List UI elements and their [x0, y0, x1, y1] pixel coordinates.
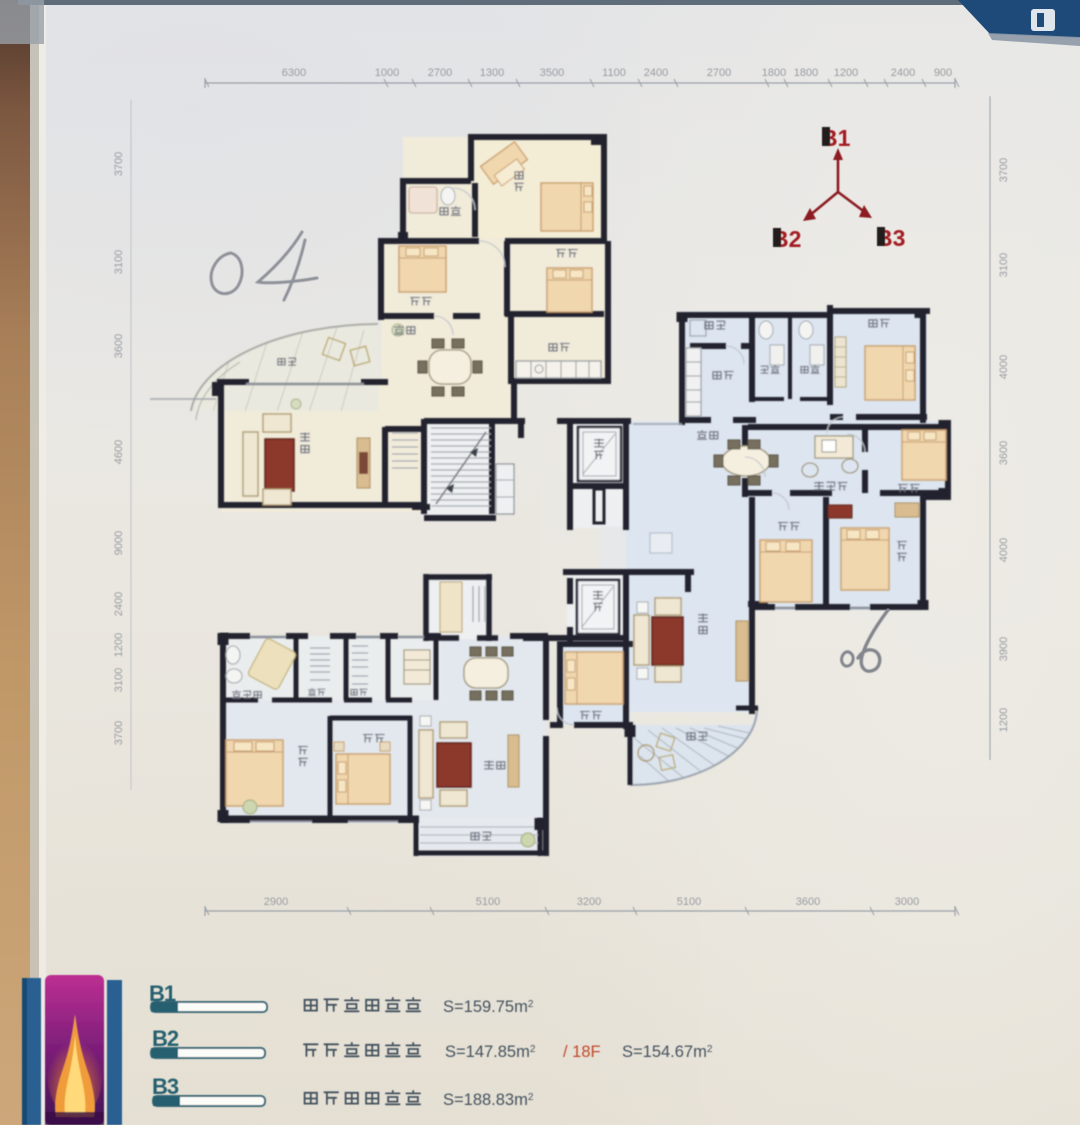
svg-text:3000: 3000 — [895, 896, 919, 908]
svg-text:2900: 2900 — [264, 896, 288, 908]
svg-text:3600: 3600 — [998, 441, 1010, 465]
svg-text:3100: 3100 — [998, 253, 1010, 277]
svg-text:5100: 5100 — [677, 896, 701, 908]
svg-text:3700: 3700 — [113, 152, 125, 176]
svg-text:9000: 9000 — [113, 531, 125, 555]
svg-text:6300: 6300 — [282, 67, 306, 79]
svg-text:2700: 2700 — [707, 67, 731, 79]
svg-text:3600: 3600 — [113, 334, 125, 358]
svg-text:S=188.83m2: S=188.83m2 — [443, 1091, 534, 1109]
svg-text:S=147.85m2: S=147.85m2 — [445, 1043, 536, 1061]
svg-text:3200: 3200 — [577, 896, 601, 908]
svg-text:2400: 2400 — [891, 67, 915, 79]
svg-text:1000: 1000 — [375, 67, 399, 79]
svg-text:4000: 4000 — [998, 538, 1010, 562]
svg-text:/ 18F: / 18F — [563, 1043, 601, 1061]
svg-text:2400: 2400 — [113, 592, 125, 616]
svg-text:2400: 2400 — [644, 67, 668, 79]
svg-text:3100: 3100 — [113, 668, 125, 692]
svg-text:S=154.67m2: S=154.67m2 — [622, 1043, 713, 1061]
svg-text:5100: 5100 — [476, 896, 500, 908]
svg-text:1200: 1200 — [834, 67, 858, 79]
svg-text:3900: 3900 — [998, 637, 1010, 661]
svg-text:900: 900 — [934, 67, 952, 79]
svg-text:1800: 1800 — [762, 67, 786, 79]
svg-text:2700: 2700 — [428, 67, 452, 79]
svg-text:3600: 3600 — [796, 896, 820, 908]
svg-text:3700: 3700 — [113, 721, 125, 745]
svg-text:1100: 1100 — [602, 67, 626, 79]
svg-text:3100: 3100 — [113, 250, 125, 274]
svg-text:1200: 1200 — [998, 708, 1010, 732]
svg-text:4000: 4000 — [998, 355, 1010, 379]
svg-text:S=159.75m2: S=159.75m2 — [443, 998, 534, 1016]
svg-text:1300: 1300 — [480, 67, 504, 79]
svg-text:3500: 3500 — [540, 67, 564, 79]
svg-text:1800: 1800 — [794, 67, 818, 79]
svg-text:3700: 3700 — [998, 158, 1010, 182]
svg-text:4600: 4600 — [113, 440, 125, 464]
svg-text:1200: 1200 — [113, 633, 125, 657]
